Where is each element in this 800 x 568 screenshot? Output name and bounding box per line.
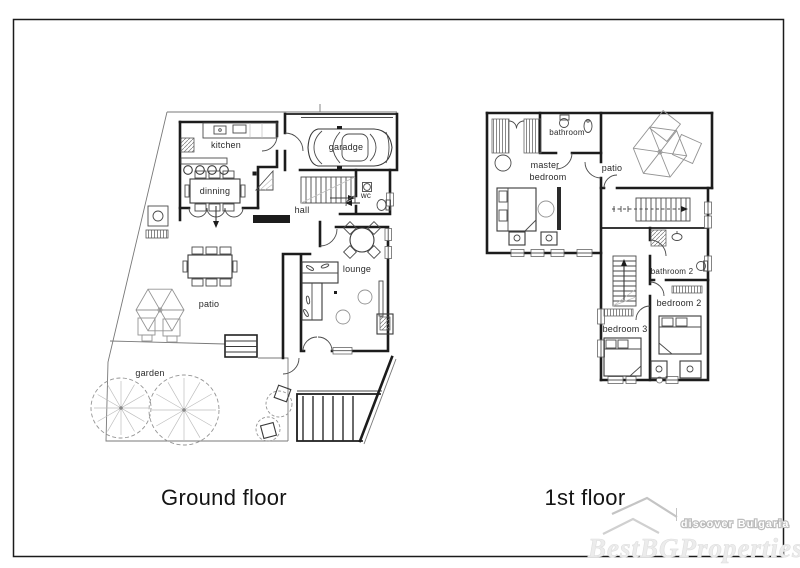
label-patio-ground: patio <box>199 299 220 309</box>
label-master-line2: bedroom <box>530 172 567 182</box>
kitchen-bar <box>181 158 228 174</box>
ground-floor-plan: kitchen dinning hall wc garadge lounge p… <box>91 104 397 445</box>
label-bedroom3: bedroom 3 <box>603 324 648 334</box>
garden-tree <box>91 378 151 438</box>
page-border <box>14 20 784 557</box>
fireplace <box>377 314 393 334</box>
label-bathroom2: bathroom 2 <box>651 267 694 276</box>
garden-unit <box>146 206 168 238</box>
master-bed <box>497 188 536 231</box>
label-bedroom2: bedroom 2 <box>657 298 702 308</box>
lounge-sofa <box>302 262 338 320</box>
master-nightstands <box>509 232 557 245</box>
label-kitchen: kitchen <box>211 140 241 150</box>
patio-arch-doors <box>189 206 243 228</box>
stove-unit <box>181 138 194 152</box>
floorplan-canvas: kitchen dinning hall wc garadge lounge p… <box>0 0 800 568</box>
first-floor-plan: master bedroom bathroom patio bathroom 2… <box>487 111 712 384</box>
bedroom2-bed <box>659 316 701 354</box>
master-partition <box>557 187 561 230</box>
bathroom2-fixtures <box>651 230 708 271</box>
watermark-tagline: discover Bulgaria <box>681 518 790 530</box>
first-floor-stairs-lower <box>613 256 636 306</box>
watermark-brand: BestBGProperties <box>587 533 800 563</box>
split-level-steps <box>253 171 274 190</box>
label-master-line1: master <box>531 160 560 170</box>
lounge-accents <box>334 281 383 324</box>
bedroom2-nightstands <box>651 361 701 378</box>
label-hall: hall <box>295 205 310 215</box>
kitchen-counter <box>203 123 277 138</box>
bedroom3-bed <box>604 338 641 376</box>
label-garden: garden <box>135 368 164 378</box>
label-bathroom1: bathroom <box>549 128 585 137</box>
entrance-plants <box>256 385 292 441</box>
first-floor-stairs-upper <box>612 198 690 221</box>
stairs-to-first-floor <box>301 177 355 203</box>
first-floor-title: 1st floor <box>545 485 626 510</box>
garden-tree <box>149 375 219 445</box>
patio-parasol <box>136 289 184 342</box>
label-wc: wc <box>360 191 371 200</box>
label-patio-first: patio <box>602 163 623 173</box>
garden-steps <box>225 335 257 357</box>
label-dinning: dinning <box>200 186 230 196</box>
master-chair <box>495 155 511 171</box>
bedroom2-wardrobe <box>672 286 702 293</box>
entrance-stairs <box>303 396 353 441</box>
patio-table <box>183 247 237 286</box>
floorplan-page: kitchen dinning hall wc garadge lounge p… <box>0 0 800 568</box>
label-garage: garadge <box>329 142 363 152</box>
label-lounge: lounge <box>343 264 371 274</box>
bedroom3-wardrobe <box>604 309 633 316</box>
master-wardrobes <box>492 119 541 153</box>
master-rug <box>538 201 554 217</box>
roof-patio-furniture <box>633 111 701 177</box>
ground-floor-title: Ground floor <box>161 485 287 510</box>
